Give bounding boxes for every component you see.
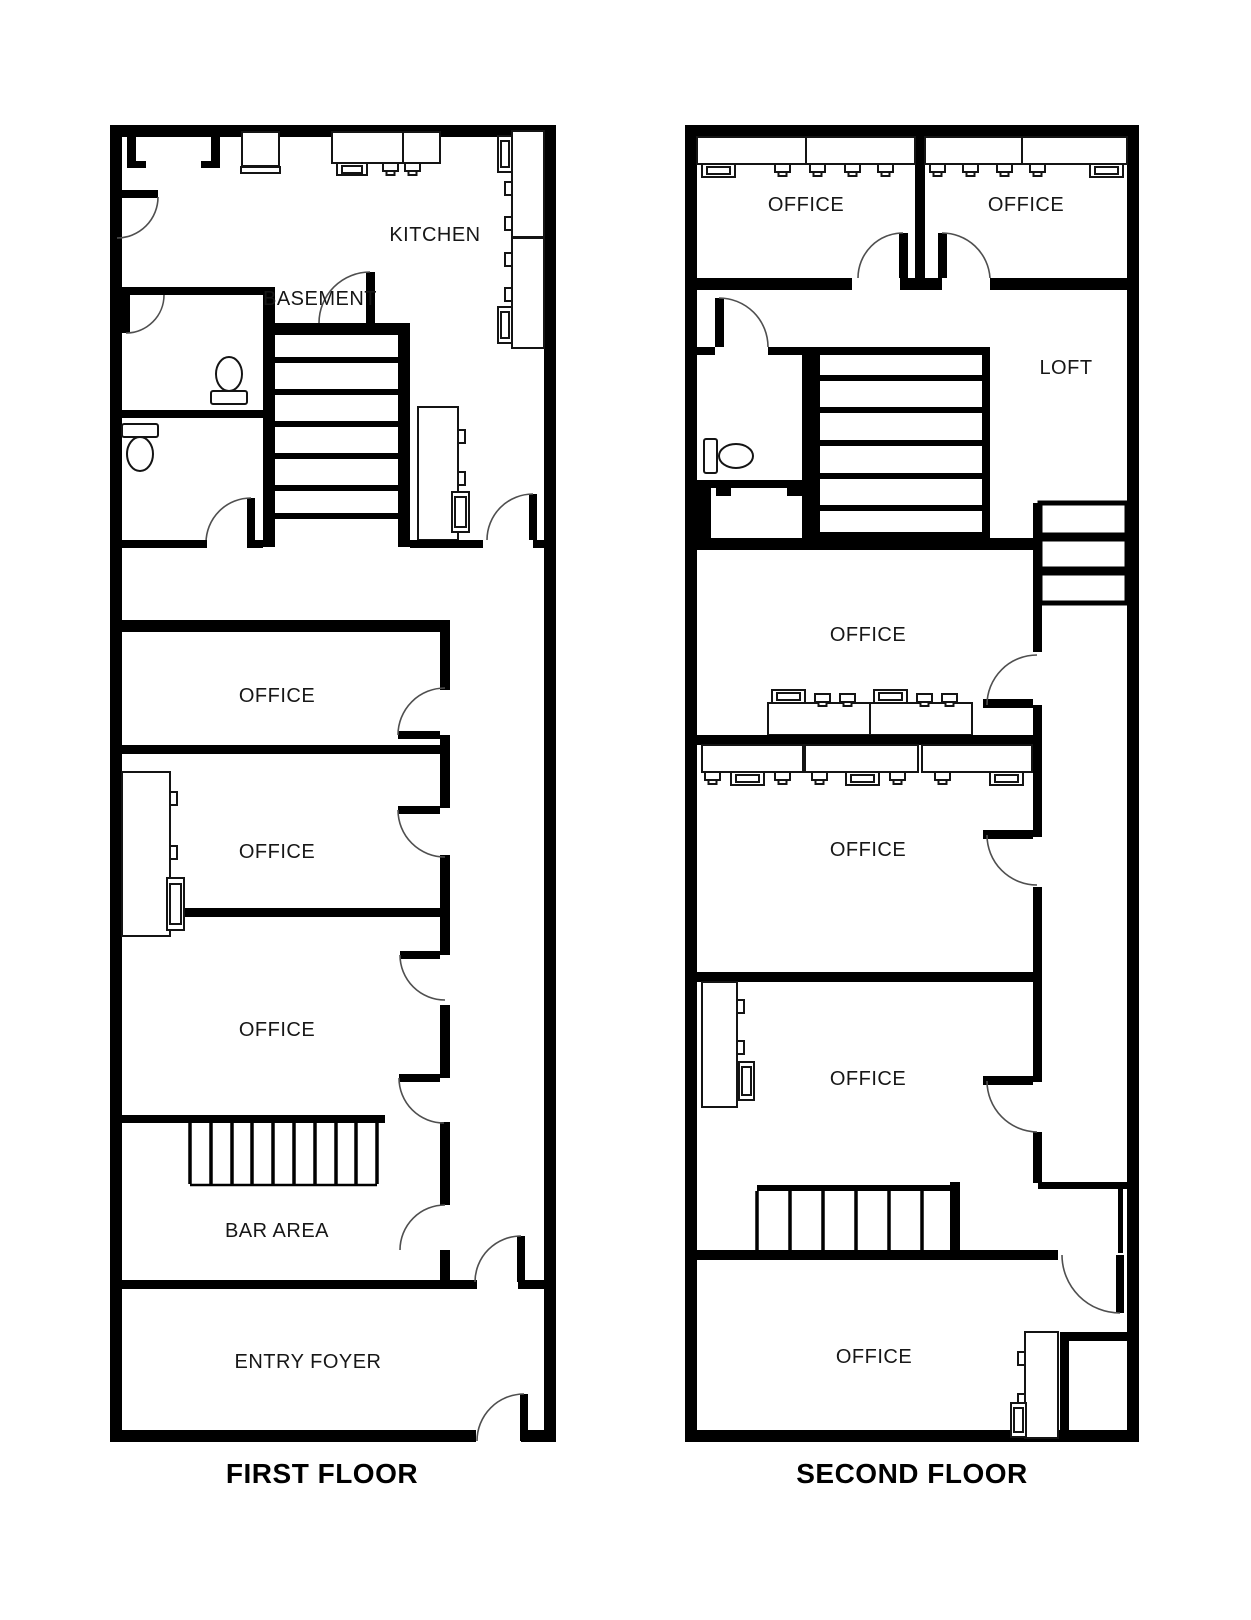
door-jamb-wall (122, 190, 158, 198)
staircase-down-to-first-floor-icon (807, 355, 990, 547)
wall (697, 538, 1037, 550)
wall (1038, 1182, 1127, 1189)
door-swing-arc (400, 955, 445, 1000)
door-jamb (716, 488, 731, 496)
door-leaf (398, 806, 440, 814)
desk (768, 703, 870, 735)
closet-below-bathroom (697, 488, 812, 542)
room-label-kitchen: KITCHEN (389, 224, 480, 246)
toilet-bowl (719, 444, 753, 468)
wall (697, 972, 1037, 982)
door-swing-arc (398, 810, 445, 857)
sink (170, 884, 181, 924)
chair-tab (963, 164, 978, 176)
toilet-icon (122, 424, 158, 471)
wall (990, 278, 1127, 290)
wall (122, 1115, 385, 1123)
bathroom-upper (110, 287, 275, 404)
second-floor-title: SECOND FLOOR (796, 1458, 1028, 1489)
first-floor-outer-walls (110, 125, 556, 1442)
first-floor-plan: KITCHEN BASEMENT OFFICE OFFICE OFFICE BA… (110, 125, 556, 1489)
sink (1014, 1408, 1023, 1432)
counter-tab (405, 163, 420, 175)
wall (900, 278, 942, 290)
office-block-walls (122, 620, 544, 1289)
appliance-tray (241, 167, 280, 173)
room-label-office-upper: OFFICE (239, 685, 315, 707)
wall (1060, 1332, 1127, 1341)
wall-stub (983, 1076, 1033, 1085)
staircase-to-first-floor-icon (757, 1182, 1127, 1253)
wall (201, 161, 220, 168)
wall (533, 540, 544, 548)
toilet-icon (704, 439, 753, 473)
door-swing-arc (398, 688, 445, 735)
monitor-icon (772, 690, 805, 703)
wall (398, 323, 410, 547)
wall (697, 278, 852, 290)
door-leaf (122, 295, 130, 333)
wall (440, 855, 450, 955)
corridor-wall (983, 503, 1042, 1183)
wall (122, 1280, 477, 1289)
sink (455, 497, 466, 527)
room-label-office-lower-mid: OFFICE (830, 1068, 906, 1090)
wall (697, 488, 711, 542)
south-office-cabinet-icon (1011, 1332, 1058, 1438)
wall (110, 287, 275, 295)
office-northwest-door (858, 233, 908, 278)
wall (1118, 1189, 1123, 1253)
door-leaf (899, 233, 908, 278)
kitchen-appliance-icon (241, 132, 280, 173)
stair-top-wall (757, 1185, 955, 1191)
cabinet-knob (170, 846, 177, 859)
door-leaf (715, 298, 724, 347)
floorplan-drawing: KITCHEN BASEMENT OFFICE OFFICE OFFICE BA… (0, 0, 1251, 1620)
room-label-entry-foyer: ENTRY FOYER (234, 1351, 381, 1373)
cabinet (512, 238, 544, 348)
corridor-to-foyer-door (475, 1236, 525, 1282)
wall (440, 632, 450, 690)
wall (950, 1182, 960, 1252)
cabinet-knob (505, 288, 512, 301)
chair-tab (997, 164, 1012, 176)
room-label-bar-area: BAR AREA (225, 1220, 329, 1242)
cabinet-knob (737, 1000, 744, 1013)
door-swing-arc (987, 655, 1037, 705)
room-label-office-south: OFFICE (836, 1346, 912, 1368)
chair-tab (705, 772, 720, 784)
counter-tab (383, 163, 398, 175)
office-cabinet-icon (122, 772, 184, 936)
cabinet (122, 772, 170, 936)
island-knob (458, 472, 465, 485)
door-leaf (398, 731, 440, 739)
sink (501, 141, 509, 167)
door-swing-arc (719, 298, 768, 347)
second-floor-plan: OFFICE OFFICE LOFT OFFICE OFFICE OFFICE … (685, 125, 1139, 1489)
sink (742, 1067, 751, 1095)
wall (697, 1250, 1058, 1260)
wall (440, 1005, 450, 1078)
wall (685, 125, 697, 1442)
stair-treads (275, 360, 398, 516)
wall (110, 125, 122, 1442)
bathroom-second-floor (697, 298, 990, 488)
door-swing-arc (858, 233, 903, 278)
storage-shelves-icon (1040, 503, 1127, 603)
chair-tab (845, 164, 860, 176)
chair-tab (812, 772, 827, 784)
door-swing-arc (942, 233, 990, 278)
door-swing-arc (475, 1236, 521, 1282)
door-swing-arc (987, 835, 1037, 885)
room-label-basement: BASEMENT (263, 288, 377, 310)
desk-workstations-middle (768, 690, 972, 735)
toilet-tank (122, 424, 158, 437)
desk-counter (925, 137, 1127, 164)
wall (1033, 1132, 1042, 1183)
cabinet-knob (505, 253, 512, 266)
door-leaf (1116, 1255, 1124, 1313)
appliance (242, 132, 279, 166)
toilet-icon (211, 357, 247, 404)
monitor-icon (731, 772, 764, 785)
office-middle-door (398, 806, 445, 857)
wall (1033, 503, 1042, 652)
shelf (1040, 503, 1127, 535)
cabinet-knob (505, 182, 512, 195)
room-label-office-lower: OFFICE (239, 1019, 315, 1041)
door-swing-arc (117, 197, 158, 238)
cabinet-knob (1018, 1352, 1025, 1365)
cabinet-knob (737, 1041, 744, 1054)
wall (685, 125, 1139, 137)
desk-workstations-row2 (702, 745, 1032, 785)
door-swing-arc (399, 1078, 444, 1123)
island-knob (458, 430, 465, 443)
wall (807, 355, 820, 547)
office-cabinet-icon (702, 982, 754, 1107)
wall (410, 540, 483, 548)
wall (110, 410, 275, 418)
door-leaf (247, 498, 255, 543)
room-label-loft: LOFT (1039, 357, 1092, 379)
wall (440, 1122, 450, 1202)
bathroom-lower (110, 410, 275, 543)
cabinet (1025, 1332, 1058, 1438)
wall (1127, 125, 1139, 1442)
door-leaf (400, 951, 440, 959)
monitor-icon (1090, 164, 1123, 177)
door-swing-arc (126, 295, 164, 333)
monitor-icon (990, 772, 1023, 785)
corridor-to-bar-door (400, 1198, 450, 1250)
wall (697, 347, 715, 355)
door-leaf (938, 233, 947, 278)
chair-tab (935, 772, 950, 784)
door-leaf (399, 1074, 440, 1082)
wall (1060, 1332, 1069, 1430)
monitor-icon (846, 772, 879, 785)
desk (922, 745, 1032, 772)
wall (122, 745, 450, 754)
door-swing-arc (1062, 1255, 1120, 1313)
wall (122, 620, 450, 632)
staircase-up-icon (190, 1123, 377, 1185)
cabinet-knob (170, 792, 177, 805)
door-swing-arc (987, 1081, 1037, 1132)
desk (805, 745, 918, 772)
top-left-door (117, 190, 158, 238)
monitor-icon (702, 164, 735, 177)
door-jamb (440, 1198, 450, 1205)
wall (247, 540, 263, 548)
wall (127, 161, 146, 168)
toilet-bowl (127, 437, 153, 471)
entry-door (477, 1394, 528, 1441)
basement-staircase-icon (263, 272, 410, 547)
chair-tab (1030, 164, 1045, 176)
wall (915, 137, 925, 290)
wall (768, 347, 990, 355)
monitor-icon (874, 690, 907, 703)
room-label-office-upper-mid: OFFICE (830, 624, 906, 646)
office-northeast-door (938, 233, 990, 278)
wall (982, 355, 990, 547)
cabinet (512, 131, 544, 237)
desk-workstations-north (697, 137, 1127, 177)
desk (702, 745, 803, 772)
shelf (1040, 539, 1127, 569)
chair-tab (878, 164, 893, 176)
wall (685, 1430, 1139, 1442)
kitchen-cabinets-icon (498, 131, 544, 348)
door-leaf (520, 1394, 528, 1441)
room-label-office-ne: OFFICE (988, 194, 1064, 216)
door-swing-arc (400, 1205, 445, 1250)
corner-closet (1060, 1332, 1127, 1430)
wall (697, 480, 812, 488)
wall (1033, 887, 1042, 1082)
wall (122, 540, 207, 548)
door-leaf (517, 1236, 525, 1282)
cabinet (702, 982, 737, 1107)
south-office-walls (697, 1250, 1124, 1313)
wall (110, 1430, 476, 1442)
chair-tab (810, 164, 825, 176)
office-upper-door (398, 688, 445, 739)
door-swing-arc (477, 1394, 524, 1441)
room-label-office-nw: OFFICE (768, 194, 844, 216)
door-swing-arc (206, 498, 251, 543)
room-label-office-middle: OFFICE (239, 841, 315, 863)
wall-stub (983, 699, 1033, 708)
kitchen-south-wall (122, 494, 544, 548)
door-swing-arc (487, 494, 533, 540)
wall-stub (983, 830, 1033, 839)
floorplan-page: KITCHEN BASEMENT OFFICE OFFICE OFFICE BA… (0, 0, 1251, 1620)
door-jamb (787, 488, 803, 496)
stair-treads (190, 1123, 377, 1184)
kitchen-counter-icon (332, 132, 440, 175)
chair-tab (775, 164, 790, 176)
sink (342, 166, 362, 173)
chair-tab (775, 772, 790, 784)
office-lower-door (400, 951, 445, 1000)
cabinet-knob (505, 217, 512, 230)
kitchen-island-icon (418, 407, 469, 540)
wall (263, 323, 410, 335)
room-label-office-mid: OFFICE (830, 839, 906, 861)
toilet-tank (211, 391, 247, 404)
bar-area-door (399, 1074, 444, 1123)
shelf (1040, 573, 1127, 603)
wall (544, 125, 556, 1442)
first-floor-title: FIRST FLOOR (226, 1458, 418, 1489)
stair-treads (820, 378, 982, 535)
sink (501, 312, 509, 338)
fireplace-niche-icon (127, 137, 220, 168)
chair-tab (890, 772, 905, 784)
wall (697, 735, 1037, 745)
toilet-tank (704, 439, 717, 473)
chair-tab (930, 164, 945, 176)
stair-treads (757, 1191, 955, 1252)
desk (870, 703, 972, 735)
counter (332, 132, 440, 163)
door-leaf (529, 494, 537, 540)
toilet-bowl (216, 357, 242, 391)
wall (1033, 705, 1042, 837)
